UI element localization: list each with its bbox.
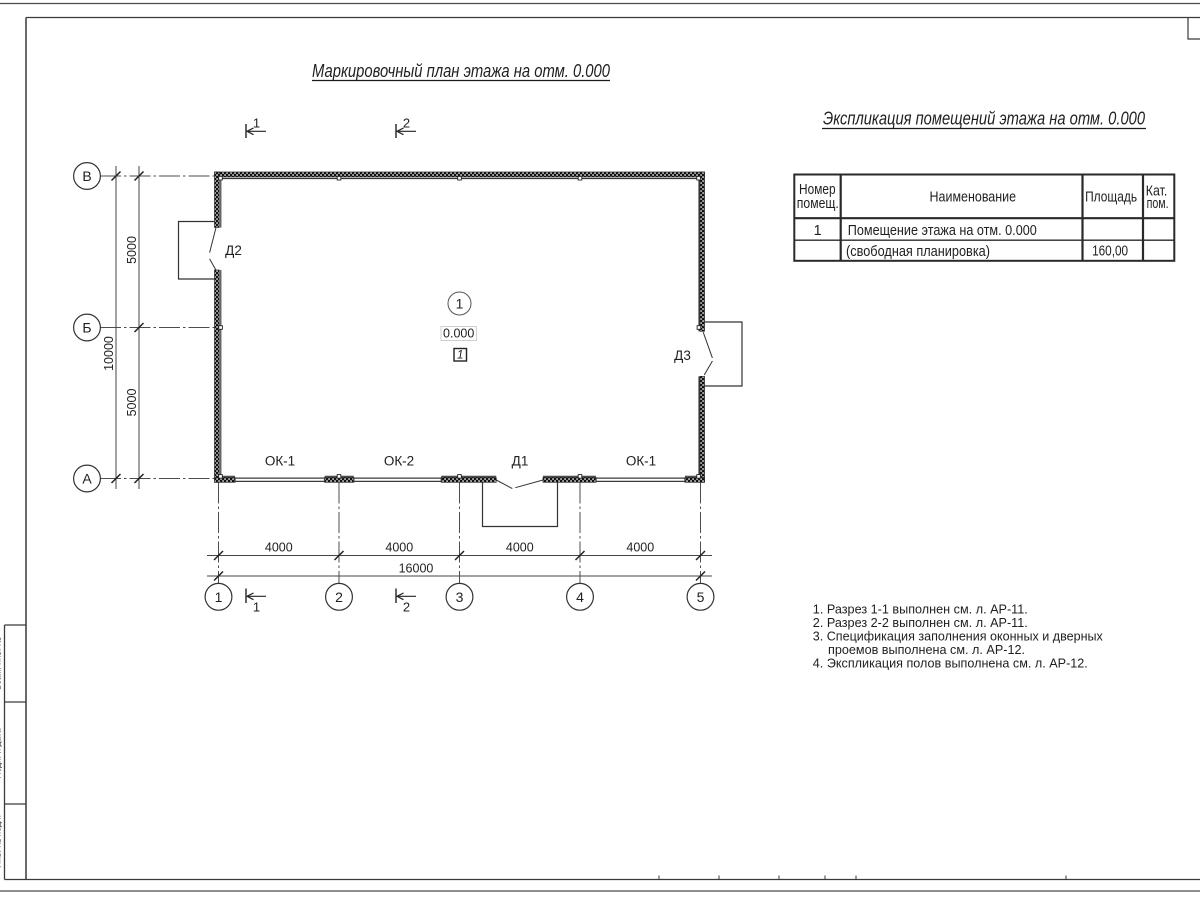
svg-text:5000: 5000 xyxy=(125,236,139,264)
svg-text:1: 1 xyxy=(814,223,822,239)
svg-text:4000: 4000 xyxy=(626,541,654,555)
svg-text:4: 4 xyxy=(576,589,584,605)
svg-text:Наименование: Наименование xyxy=(930,189,1017,205)
svg-text:А: А xyxy=(82,471,92,487)
svg-text:Взам. инв. №: Взам. инв. № xyxy=(0,637,3,690)
svg-text:ОК-2: ОК-2 xyxy=(384,454,414,469)
svg-text:1: 1 xyxy=(456,295,464,311)
svg-text:Инв. № подл.: Инв. № подл. xyxy=(0,815,3,868)
svg-text:4. Экспликация полов выполнена: 4. Экспликация полов выполнена см. л. АР… xyxy=(813,656,1088,671)
svg-text:Площадь: Площадь xyxy=(1085,189,1137,205)
svg-text:ОК-1: ОК-1 xyxy=(626,454,656,469)
svg-text:1: 1 xyxy=(457,350,463,362)
svg-text:4000: 4000 xyxy=(265,541,293,555)
svg-text:16000: 16000 xyxy=(399,562,434,576)
svg-text:Д3: Д3 xyxy=(674,348,691,363)
svg-text:160,00: 160,00 xyxy=(1092,244,1128,260)
svg-text:5000: 5000 xyxy=(125,389,139,417)
svg-text:Экспликация помещений этажа на: Экспликация помещений этажа на отм. 0.00… xyxy=(823,108,1146,129)
svg-text:Помещение этажа на отм. 0.000: Помещение этажа на отм. 0.000 xyxy=(848,223,1037,239)
svg-text:помещ.: помещ. xyxy=(797,196,839,212)
svg-text:10000: 10000 xyxy=(102,336,116,371)
svg-text:4000: 4000 xyxy=(385,541,413,555)
svg-text:Д2: Д2 xyxy=(225,243,242,258)
svg-text:2: 2 xyxy=(403,116,410,131)
svg-text:пом.: пом. xyxy=(1147,196,1169,212)
svg-text:В: В xyxy=(82,168,91,184)
svg-text:3: 3 xyxy=(456,589,464,605)
svg-text:0.000: 0.000 xyxy=(443,327,474,341)
svg-text:Д1: Д1 xyxy=(512,454,529,469)
svg-text:4000: 4000 xyxy=(506,541,534,555)
svg-text:1: 1 xyxy=(215,589,223,605)
svg-text:2: 2 xyxy=(403,600,410,615)
svg-text:Б: Б xyxy=(82,320,91,336)
svg-text:5: 5 xyxy=(697,589,705,605)
svg-text:Маркировочный план этажа на от: Маркировочный план этажа на отм. 0.000 xyxy=(312,60,611,81)
svg-text:(свободная планировка): (свободная планировка) xyxy=(846,244,990,260)
svg-text:Подп. и дата: Подп. и дата xyxy=(0,728,3,778)
svg-text:ОК-1: ОК-1 xyxy=(265,454,295,469)
svg-text:2: 2 xyxy=(335,589,343,605)
svg-text:1: 1 xyxy=(253,116,260,131)
svg-text:1: 1 xyxy=(253,600,260,615)
